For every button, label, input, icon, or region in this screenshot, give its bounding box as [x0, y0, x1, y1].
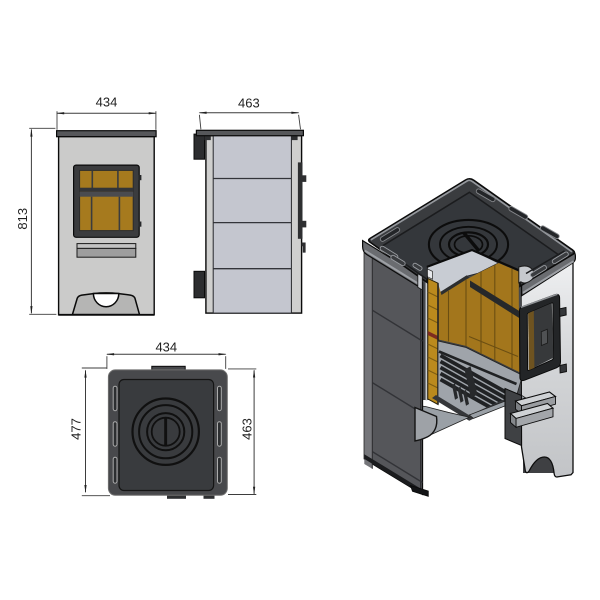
svg-text:463: 463: [238, 95, 260, 110]
svg-text:434: 434: [96, 94, 118, 109]
svg-text:463: 463: [239, 418, 254, 440]
svg-text:813: 813: [15, 208, 30, 230]
svg-text:434: 434: [155, 340, 177, 355]
svg-text:477: 477: [69, 418, 84, 440]
